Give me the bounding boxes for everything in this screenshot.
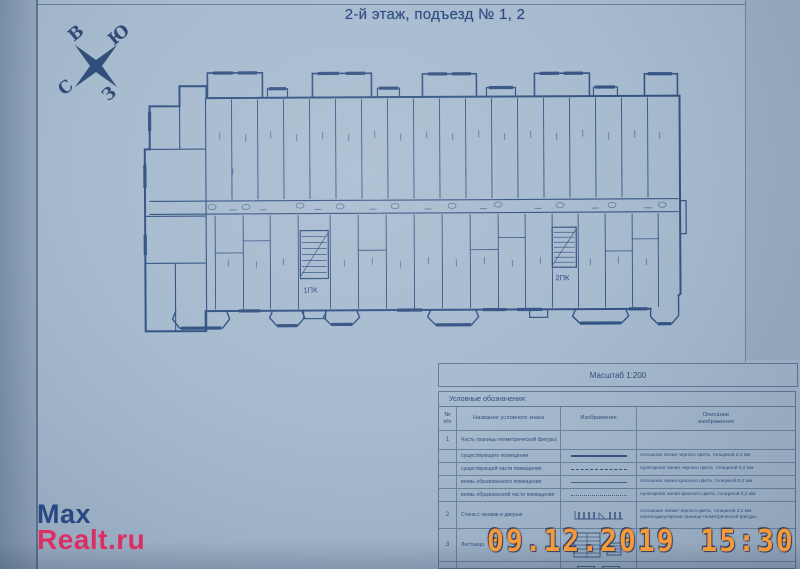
legend-row-image	[561, 463, 637, 476]
legend-row-name: существующего помещения	[457, 450, 561, 463]
camera-timestamp: 09.12.2019 15:30	[487, 523, 795, 559]
legend-row-name: Часть границы геометрической фигуры:	[457, 431, 561, 450]
legend-row-desc	[637, 562, 795, 569]
legend-header-name: Название условного знака	[457, 407, 561, 431]
legend-row-name: вновь образованного помещения	[457, 476, 561, 489]
page-edge-shadow	[0, 0, 36, 569]
floor-plan: 1ПК 2ПК	[135, 47, 697, 342]
thin-solid-line-sample	[571, 482, 627, 483]
interior-partitions	[215, 237, 658, 253]
compass-rose-icon: В Ю С З	[50, 18, 142, 110]
wall-with-windows-icon	[572, 507, 626, 523]
legend-row-num: 2	[439, 502, 457, 529]
legend-row-image	[561, 562, 637, 569]
legend-row-desc: пунктирная линия красного цвета, толщино…	[637, 489, 795, 502]
upper-room-dividers	[232, 98, 649, 199]
legend-row-num	[439, 463, 457, 476]
legend-caption: Условные обозначения:	[439, 392, 795, 406]
legend-header-description: Описание изображения	[637, 407, 795, 431]
scale-label: Масштаб 1:200	[590, 371, 646, 380]
legend-row-image	[561, 450, 637, 463]
legend-row-num	[439, 476, 457, 489]
outer-walls	[144, 84, 680, 332]
legend-row-num: 1	[439, 431, 457, 450]
legend-row-desc	[637, 431, 795, 450]
page-left-border	[36, 0, 38, 569]
legend-row-desc: пунктирная линия черного цвета, толщиной…	[637, 463, 795, 476]
legend-header-num: № п/п	[439, 407, 457, 431]
thin-dashed-line-sample	[571, 495, 627, 496]
watermark-line2: Realt.ru	[37, 526, 145, 554]
solid-line-sample	[571, 455, 627, 457]
compass-star	[75, 45, 117, 87]
legend-row-image	[561, 476, 637, 489]
scale-box: Масштаб 1:200	[438, 363, 798, 387]
staircase-2	[552, 227, 576, 267]
page-right-shade	[746, 0, 800, 360]
compass-letter-east: В	[64, 21, 88, 46]
corridor-walls	[150, 199, 678, 215]
legend-row-image	[561, 431, 637, 450]
compass-letter-north: С	[54, 76, 77, 100]
legend-row-num	[439, 489, 457, 502]
compass-letter-south: Ю	[104, 20, 134, 49]
legend-row-image	[561, 489, 637, 502]
legend-row-desc: сплошная линия черного цвета, толщиной 0…	[637, 450, 795, 463]
staircase-2-label: 2ПК	[555, 273, 570, 282]
compass-letter-west: З	[98, 83, 120, 106]
watermark: Max Realt.ru	[37, 501, 145, 554]
scanned-floor-plan-photo: 2-й этаж, подъезд № 1, 2 В Ю С З	[0, 0, 800, 569]
legend-header-image: Изображение	[561, 407, 637, 431]
legend-row-name: вновь образованной части помещения	[457, 489, 561, 502]
dashed-line-sample	[571, 469, 627, 470]
staircase-1	[300, 230, 328, 278]
page-title: 2-й этаж, подъезд № 1, 2	[300, 6, 570, 23]
page-top-border	[38, 4, 745, 5]
legend-row-num: 3	[439, 529, 457, 562]
legend-row-name	[457, 562, 561, 569]
legend-row-num: 4	[439, 562, 457, 569]
legend-row-desc: сплошная линия красного цвета, толщиной …	[637, 476, 795, 489]
legend-row-name: существующей части помещения	[457, 463, 561, 476]
lower-room-dividers	[215, 214, 658, 309]
staircase-1-label: 1ПК	[303, 286, 318, 295]
legend-row-num	[439, 450, 457, 463]
